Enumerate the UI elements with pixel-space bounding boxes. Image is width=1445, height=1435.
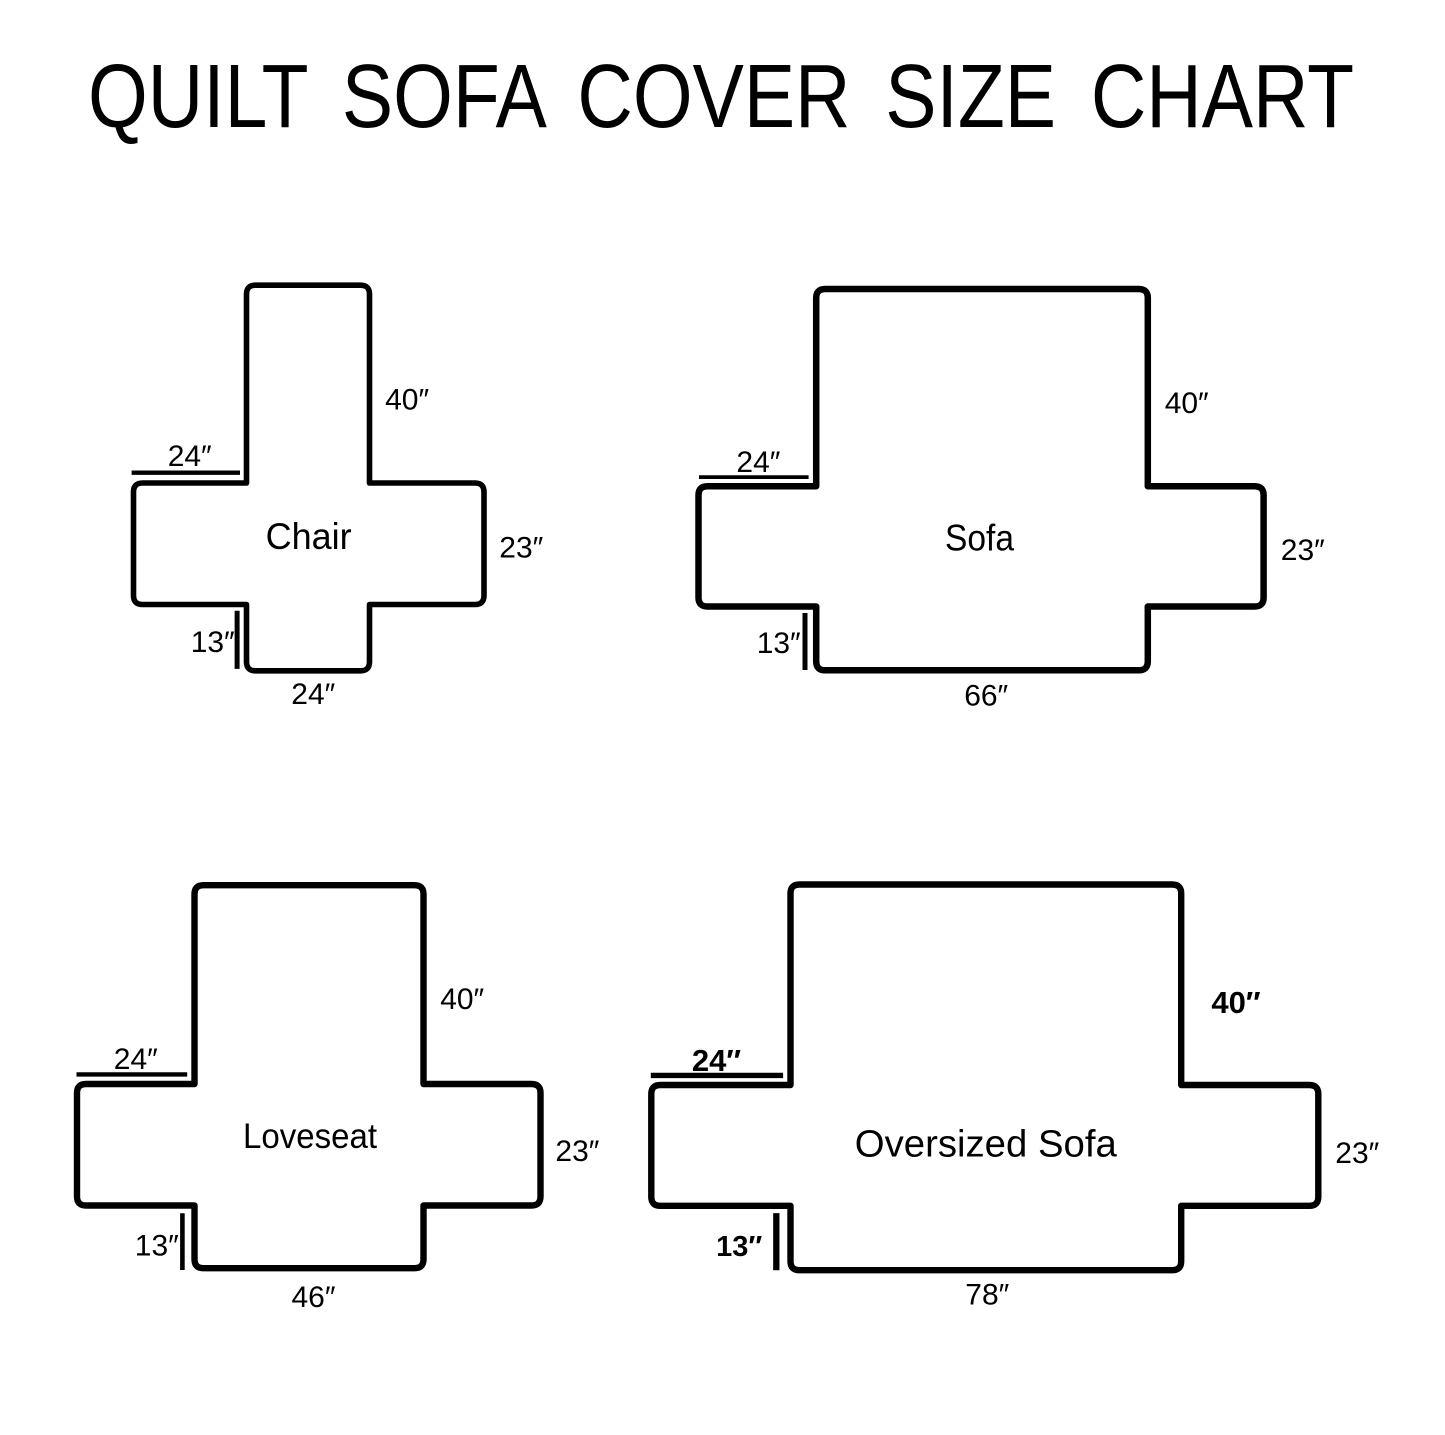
svg-text:24″: 24″ — [692, 1043, 741, 1078]
svg-text:13″: 13″ — [191, 626, 235, 659]
svg-text:24″: 24″ — [291, 678, 335, 711]
svg-text:13″: 13″ — [757, 627, 801, 660]
svg-text:40″: 40″ — [1165, 387, 1209, 420]
svg-text:24″: 24″ — [168, 440, 212, 473]
svg-text:Sofa: Sofa — [945, 517, 1014, 558]
svg-text:78″: 78″ — [965, 1279, 1009, 1312]
svg-text:13″: 13″ — [716, 1231, 762, 1263]
svg-text:23″: 23″ — [1281, 534, 1325, 567]
svg-text:23″: 23″ — [555, 1135, 599, 1168]
svg-text:46″: 46″ — [292, 1281, 336, 1314]
svg-text:Oversized Sofa: Oversized Sofa — [855, 1124, 1118, 1166]
svg-text:Chair: Chair — [266, 516, 352, 557]
svg-text:40″: 40″ — [440, 983, 484, 1016]
svg-text:QUILT SOFA COVER SIZE CHART: QUILT SOFA COVER SIZE CHART — [88, 47, 1354, 147]
svg-text:24″: 24″ — [114, 1043, 158, 1076]
svg-text:24″: 24″ — [736, 446, 780, 479]
svg-text:13″: 13″ — [135, 1229, 179, 1262]
svg-text:Loveseat: Loveseat — [243, 1116, 377, 1156]
svg-text:40″: 40″ — [1211, 985, 1260, 1020]
svg-text:23″: 23″ — [499, 531, 543, 564]
svg-text:23″: 23″ — [1335, 1137, 1379, 1170]
svg-text:40″: 40″ — [385, 384, 429, 417]
svg-text:66″: 66″ — [964, 680, 1008, 713]
